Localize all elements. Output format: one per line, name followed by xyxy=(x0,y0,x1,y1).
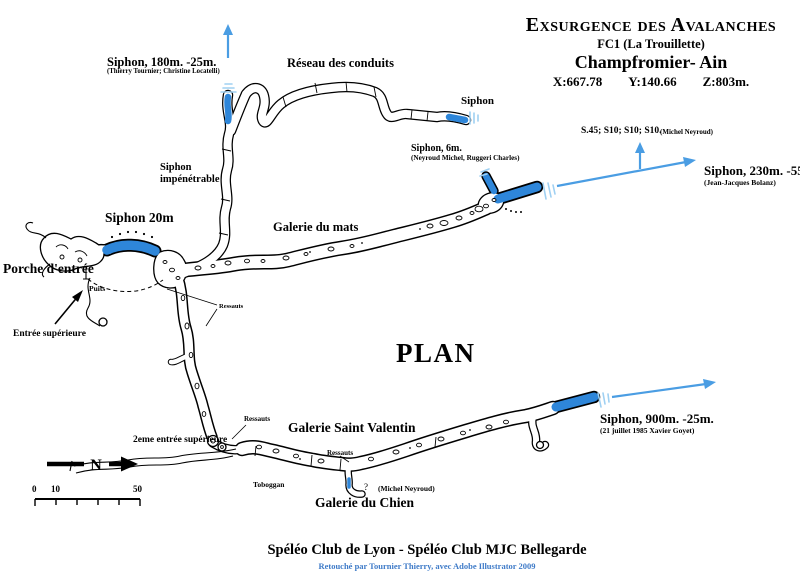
label-siphon-900: Siphon, 900m. -25m. xyxy=(600,412,714,427)
label-puits: Puits xyxy=(89,284,105,293)
label-siphon-900-credit: (21 juillet 1985 Xavier Goyet) xyxy=(600,426,694,435)
passage-detail-rocks xyxy=(56,82,509,470)
label-siphon-180: Siphon, 180m. -25m. xyxy=(107,55,216,69)
label-siphon-180-credit: (Thierry Tournier; Christine Locatelli) xyxy=(107,68,220,75)
cave-survey-map: N Siphon, 180m. -25m. (Thierry Tournier;… xyxy=(0,0,800,578)
north-label: N xyxy=(90,457,102,474)
label-siphon-230: Siphon, 230m. -55m. xyxy=(704,164,800,179)
footer-clubs: Spéléo Club de Lyon - Spéléo Club MJC Be… xyxy=(27,542,800,558)
scale-bar xyxy=(35,499,140,506)
arrow-up-small xyxy=(635,142,645,169)
label-porche-entree: Porche d'entrée xyxy=(3,261,94,276)
label-siphon-6m-credit: (Neyroud Michel, Ruggeri Charles) xyxy=(411,154,519,162)
label-toboggan: Toboggan xyxy=(253,480,284,489)
label-plan: PLAN xyxy=(396,338,476,368)
coord-y: Y:140.66 xyxy=(628,74,676,90)
north-arrow: N xyxy=(47,457,138,475)
label-question-credit: (Michel Neyroud) xyxy=(378,484,435,493)
label-s45: S.45; S10; S10; S10. xyxy=(581,126,662,137)
label-galerie-du-mats: Galerie du mats xyxy=(273,220,358,234)
footer-credit: Retouché par Tournier Thierry, avec Adob… xyxy=(27,562,800,572)
map-code: FC1 (La Trouillette) xyxy=(505,37,797,51)
arrow-up-north xyxy=(223,24,233,58)
map-coordinates: X:667.78 Y:140.66 Z:803m. xyxy=(505,74,797,90)
label-siphon-230-credit: (Jean-Jacques Bolanz) xyxy=(704,178,776,187)
map-title: Exsurgence des Avalanches xyxy=(505,14,797,36)
label-siphon-impenetrable-line2: impénétrable xyxy=(160,174,220,186)
label-s45-credit: (Michel Neyroud) xyxy=(660,128,713,136)
label-siphon-top: Siphon xyxy=(461,95,494,107)
label-deuxieme-entree: 2eme entrée supérieure xyxy=(133,435,227,446)
scale-ten-label: 10 xyxy=(51,484,60,494)
scale-end-label: 50 xyxy=(133,484,142,494)
label-ressauts-left: Ressauts xyxy=(244,415,270,423)
label-siphon-6m: Siphon, 6m. xyxy=(411,143,462,154)
label-reseau-conduits: Réseau des conduits xyxy=(287,56,394,70)
label-galerie-saint-valentin: Galerie Saint Valentin xyxy=(288,420,416,435)
arrow-east-long xyxy=(557,157,696,186)
entree-superieure-arrow xyxy=(55,290,83,324)
scale-start-label: 0 xyxy=(32,484,37,494)
label-galerie-du-chien: Galerie du Chien xyxy=(315,495,414,510)
map-commune: Champfromier- Ain xyxy=(505,52,797,72)
entrance-chambers xyxy=(26,189,507,288)
arrow-southeast xyxy=(612,379,716,397)
coord-x: X:667.78 xyxy=(553,74,602,90)
label-entree-superieure: Entrée supérieure xyxy=(13,329,86,340)
coord-z: Z:803m. xyxy=(703,74,750,90)
label-question-mark: ? xyxy=(364,482,368,492)
label-siphon-impenetrable-line1: Siphon xyxy=(160,162,220,174)
label-ressauts-bottom: Ressauts xyxy=(327,449,353,457)
label-siphon-20m: Siphon 20m xyxy=(105,210,174,225)
label-ressauts-center: Ressauts xyxy=(219,303,243,310)
label-siphon-impenetrable: Siphon impénétrable xyxy=(160,162,220,186)
